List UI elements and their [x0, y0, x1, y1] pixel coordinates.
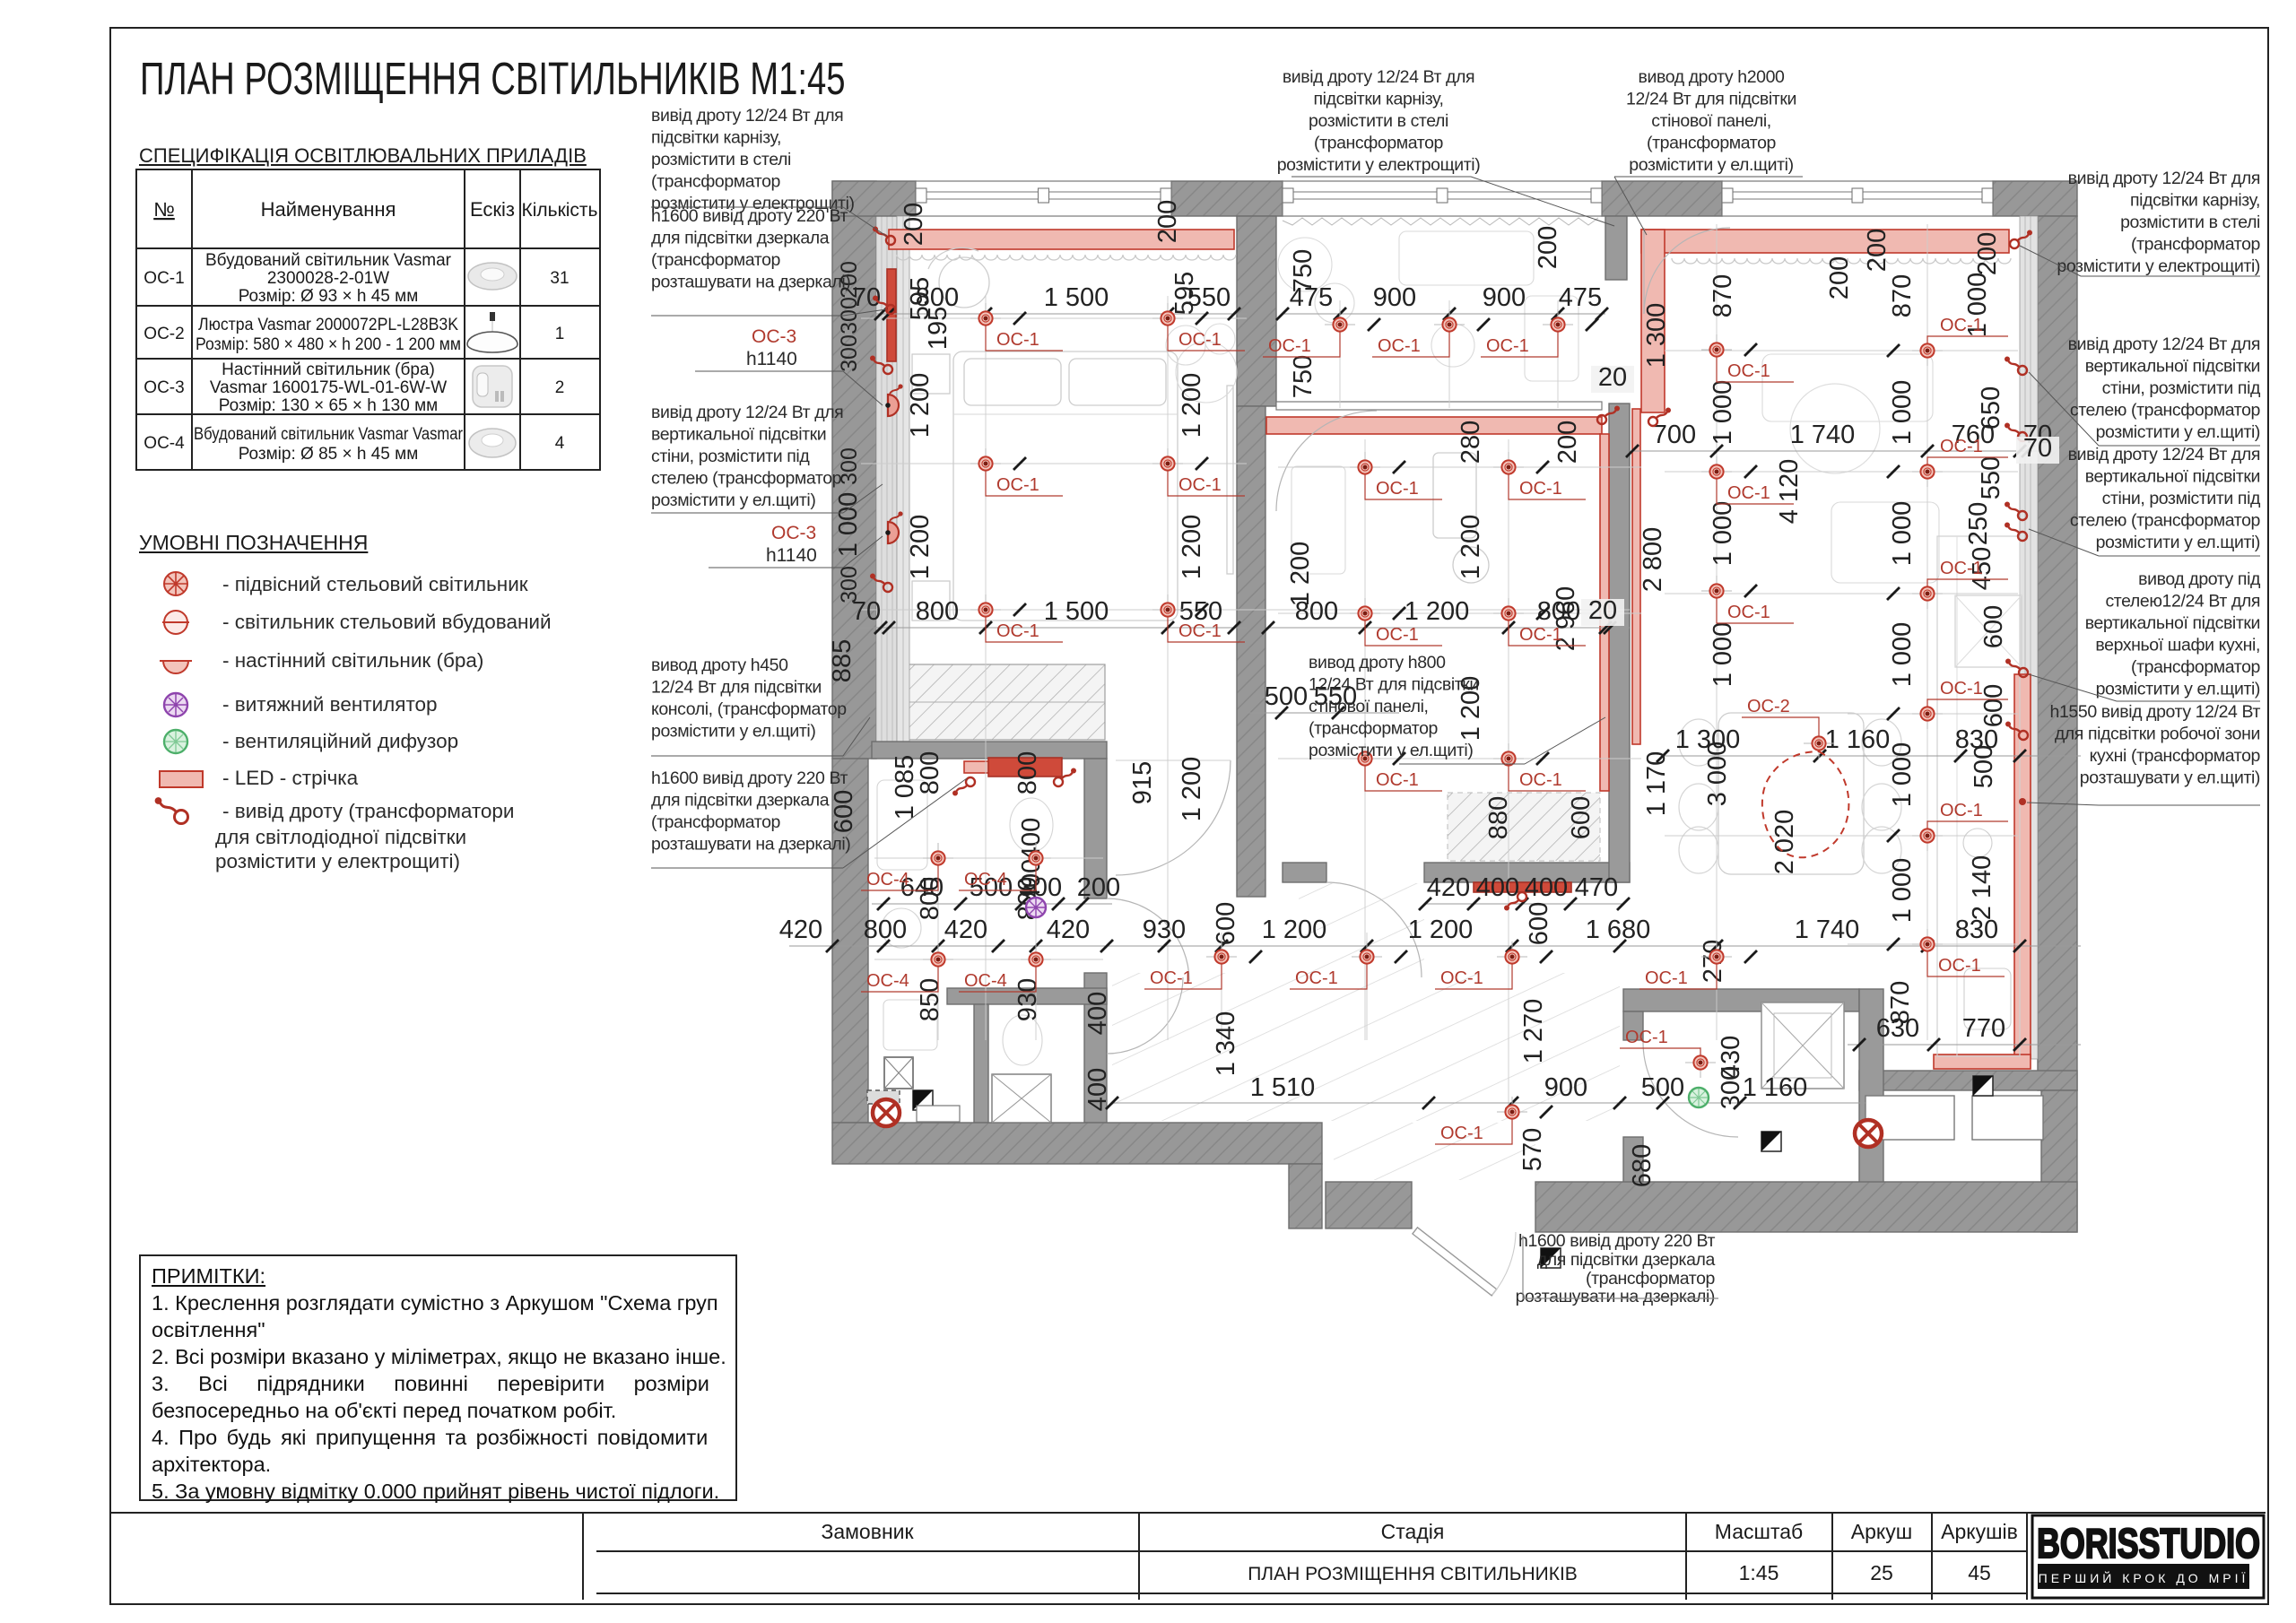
svg-text:ПЛАН РОЗМІЩЕННЯ СВІТИЛЬНИКІВ: ПЛАН РОЗМІЩЕННЯ СВІТИЛЬНИКІВ: [1248, 1564, 1578, 1584]
svg-text:Аркушів: Аркушів: [1941, 1520, 2018, 1543]
svg-text:1:45: 1:45: [1739, 1561, 1779, 1584]
svg-text:BORISSTUDIO: BORISSTUDIO: [2037, 1520, 2260, 1567]
svg-text:Стадія: Стадія: [1381, 1520, 1445, 1543]
svg-text:ПЕРШИЙ КРОК ДО МРІЇ: ПЕРШИЙ КРОК ДО МРІЇ: [2039, 1570, 2249, 1585]
svg-text:Замовник: Замовник: [821, 1520, 914, 1543]
svg-text:Масштаб: Масштаб: [1715, 1520, 1803, 1543]
svg-text:25: 25: [1870, 1561, 1893, 1584]
svg-text:45: 45: [1968, 1561, 1991, 1584]
svg-text:Аркуш: Аркуш: [1851, 1520, 1912, 1543]
